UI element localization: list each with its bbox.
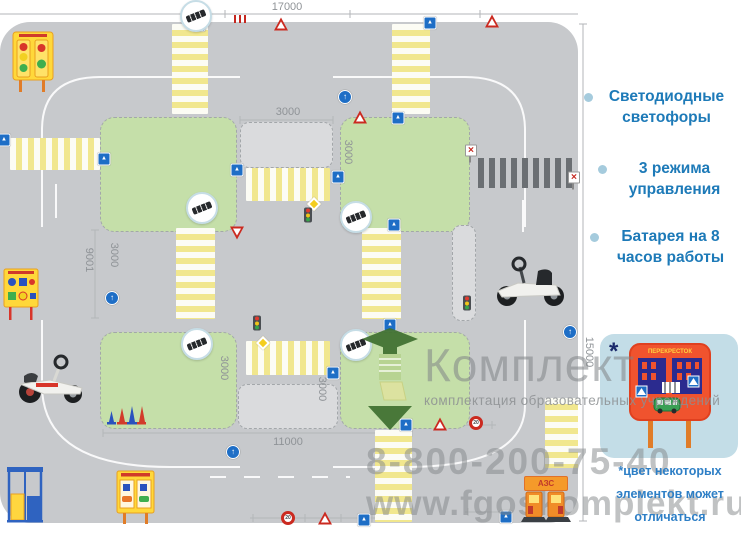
intersection-sign-card: * ПЕРЕКРЕСТОК bbox=[600, 334, 738, 458]
railway-signal: ✕ bbox=[465, 145, 475, 162]
feature-label: 3 режима управления bbox=[607, 158, 741, 200]
dimension-label: 11000 bbox=[273, 436, 303, 448]
dimension-label: 3000 bbox=[108, 243, 120, 267]
sign-red-triangle bbox=[318, 512, 332, 525]
sign-title-text: ПЕРЕКРЕСТОК bbox=[648, 349, 692, 355]
road-signs-board bbox=[3, 268, 41, 320]
sign-red-triangle bbox=[433, 418, 447, 431]
feature-bullet-led-lights: Светодиодные светофоры bbox=[584, 86, 740, 128]
bullet-dot-icon bbox=[590, 233, 599, 242]
sign-blue-square: ▲ bbox=[500, 511, 513, 524]
pedal-go-kart-black bbox=[490, 253, 572, 309]
sign-blue-square: ▲ bbox=[392, 112, 405, 125]
pedal-go-kart-red bbox=[10, 350, 92, 406]
feature-bullet-battery: Батарея на 8 часов работы bbox=[590, 226, 741, 268]
paved-plot bbox=[240, 122, 333, 168]
sign-blue-square: ▲ bbox=[388, 219, 401, 232]
zebra-crossing bbox=[362, 228, 401, 319]
zebra-crossing bbox=[375, 430, 412, 522]
sign-blue-circle: ↑ bbox=[563, 325, 577, 339]
sign-blue-circle: ↑ bbox=[338, 90, 352, 104]
sign-blue-square: ▲ bbox=[327, 367, 340, 380]
sign-blue-square: ▲ bbox=[384, 319, 397, 332]
zebra-crossing bbox=[176, 228, 215, 319]
traffic-playground-plan: 170003000300030003000300090011100015000▲… bbox=[0, 0, 600, 535]
sign-blue-circle: ↑ bbox=[105, 291, 119, 305]
sign-red-triangle bbox=[353, 111, 367, 124]
dimension-label: 17000 bbox=[272, 1, 303, 13]
railway-crossing bbox=[478, 158, 572, 188]
callout-speed-bump bbox=[180, 0, 212, 32]
sign-speed-limit: 20 bbox=[469, 416, 483, 430]
traffic-cones bbox=[102, 402, 146, 426]
dimension-label: 3000 bbox=[316, 377, 328, 401]
sign-blue-circle: ↑ bbox=[226, 445, 240, 459]
color-disclaimer-note: *цвет некоторых элементов может отличать… bbox=[596, 460, 741, 529]
asterisk-mark: * bbox=[609, 338, 618, 366]
zebra-crossing bbox=[172, 24, 208, 114]
sign-red-triangle bbox=[274, 18, 288, 31]
traffic-light-small bbox=[253, 316, 261, 331]
zebra-crossing bbox=[545, 398, 578, 468]
zebra-crossing bbox=[392, 24, 430, 114]
railway-signal: ✕ bbox=[568, 172, 578, 189]
dimension-label: 3000 bbox=[342, 140, 354, 164]
dimension-label: 9001 bbox=[83, 248, 95, 272]
callout-speed-bump bbox=[186, 192, 218, 224]
traffic-light-small bbox=[463, 296, 471, 311]
callout-speed-bump bbox=[181, 328, 213, 360]
gas-station-model: АЗС bbox=[518, 476, 572, 524]
bus-stop-shelter bbox=[5, 464, 47, 524]
bullet-dot-icon bbox=[584, 93, 593, 102]
dimension-label: 15000 bbox=[583, 337, 595, 368]
sign-blue-square: ▲ bbox=[424, 17, 437, 30]
feature-label: Светодиодные светофоры bbox=[593, 86, 740, 128]
sign-red-triangle bbox=[485, 15, 499, 28]
sign-yield-triangle bbox=[230, 227, 244, 240]
misc-red-marks bbox=[234, 15, 246, 23]
intersection-board-graphic: ПЕРЕКРЕСТОК bbox=[622, 338, 722, 460]
product-image: { "plan": { "dim_labels": [ {"t":"17000"… bbox=[0, 0, 741, 535]
feature-label: Батарея на 8 часов работы bbox=[599, 226, 741, 268]
dimension-label: 3000 bbox=[276, 106, 300, 118]
sign-blue-square: ▲ bbox=[231, 164, 244, 177]
sign-blue-square: ▲ bbox=[98, 153, 111, 166]
info-stand bbox=[116, 470, 156, 524]
dimension-label: 3000 bbox=[218, 356, 230, 380]
sign-blue-square: ▲ bbox=[332, 171, 345, 184]
sign-blue-square: ▲ bbox=[0, 134, 11, 147]
traffic-light-training-stand bbox=[11, 30, 55, 92]
gas-station-pumps bbox=[518, 476, 572, 524]
callout-speed-bump bbox=[340, 201, 372, 233]
zebra-crossing bbox=[10, 138, 100, 170]
sign-blue-square: ▲ bbox=[358, 514, 371, 527]
zebra-crossing bbox=[246, 168, 330, 201]
callout-speed-bump bbox=[340, 329, 372, 361]
sign-blue-square: ▲ bbox=[400, 419, 413, 432]
bullet-dot-icon bbox=[598, 165, 607, 174]
sign-speed-limit: 20 bbox=[281, 511, 295, 525]
traffic-light-small bbox=[304, 208, 312, 223]
feature-bullet-control-modes: 3 режима управления bbox=[598, 158, 741, 200]
